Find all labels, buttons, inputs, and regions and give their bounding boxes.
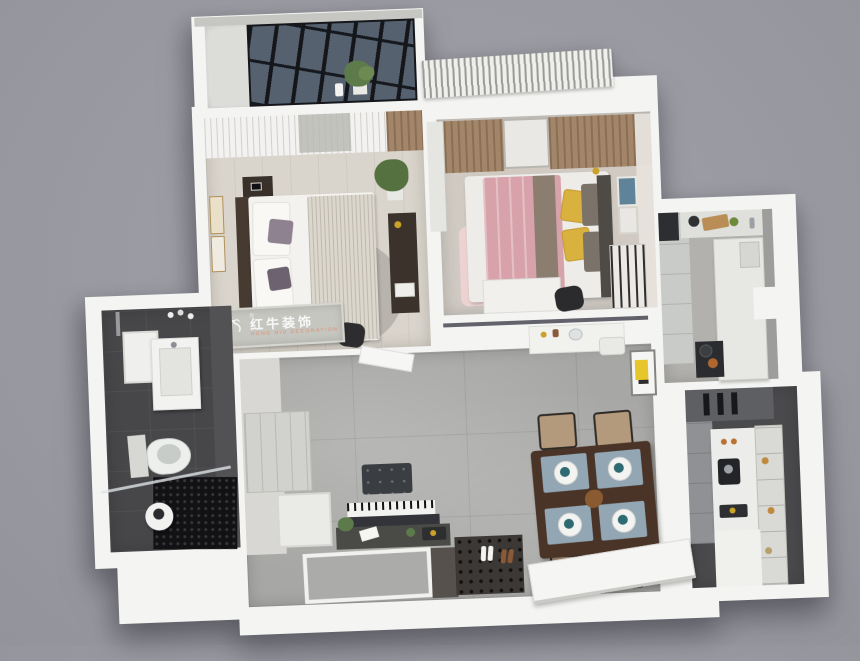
bedroom1-plant-icon bbox=[374, 159, 409, 192]
dining-chair-top-left bbox=[537, 412, 578, 451]
balcony-glass-windows bbox=[247, 18, 418, 106]
bedroom1-wall-frame-1 bbox=[209, 196, 224, 235]
room-second-bedroom bbox=[0, 0, 847, 17]
room-bathroom bbox=[0, 0, 847, 17]
registered-mark: ® bbox=[249, 313, 254, 319]
kitchen-wall-notch bbox=[753, 286, 784, 319]
toilet-tank bbox=[127, 435, 149, 478]
room-kitchen bbox=[0, 0, 847, 17]
bedroom2-book-shelf bbox=[609, 244, 647, 309]
white-shoe-right bbox=[488, 546, 494, 561]
piano-bench bbox=[362, 463, 413, 495]
bedroom2-window bbox=[502, 117, 550, 169]
bedroom1-side-curtain bbox=[386, 110, 424, 151]
room-pantry bbox=[0, 0, 847, 17]
balcony-wardrobe bbox=[209, 29, 252, 106]
pantry-appliance-slot-3 bbox=[731, 392, 738, 414]
bedroom2-curtain-right bbox=[548, 114, 636, 169]
bedroom1-wall-frame-2 bbox=[211, 236, 226, 273]
bedroom1-accent-pillow-2 bbox=[267, 266, 292, 291]
entry-panel bbox=[302, 547, 433, 604]
hallway-closet bbox=[243, 411, 312, 493]
white-shoe-left bbox=[481, 546, 486, 561]
pantry-appliance-cabinet bbox=[685, 387, 774, 422]
bedroom1-phone-icon bbox=[251, 182, 262, 190]
bedroom2-frame-white bbox=[618, 206, 639, 235]
vanity-perfume-icon-2 bbox=[552, 329, 558, 337]
vanity-stool bbox=[599, 337, 626, 356]
apartment-plan: ® 红牛装饰 HONG NIU DECORATION bbox=[0, 0, 860, 661]
watermark-banner: ® 红牛装饰 HONG NIU DECORATION bbox=[217, 302, 345, 349]
kitchen-faucet-icon bbox=[749, 217, 754, 228]
bedroom2-corner-wall bbox=[634, 113, 652, 166]
washer-box bbox=[277, 492, 333, 548]
kitchen-sink bbox=[739, 241, 760, 268]
room-balcony bbox=[0, 0, 847, 17]
kitchen-fridge bbox=[658, 212, 679, 241]
bedroom1-desk bbox=[388, 212, 420, 313]
pantry-appliance-slot-2 bbox=[717, 393, 724, 415]
room-master-bedroom: ® 红牛装饰 HONG NIU DECORATION bbox=[0, 0, 847, 17]
bedroom1-books bbox=[395, 283, 416, 298]
yellow-artwork-block bbox=[635, 360, 649, 380]
room-living-dining bbox=[0, 0, 847, 17]
balcony-vase bbox=[335, 83, 343, 96]
corner-wall-wedge bbox=[117, 547, 250, 624]
pantry-base-cabinet bbox=[714, 529, 762, 587]
pantry-appliance-slot-1 bbox=[703, 393, 710, 415]
bathroom-sink-basin bbox=[159, 347, 193, 396]
yellow-artwork-line bbox=[638, 380, 648, 384]
bedroom1-accent-pillow-1 bbox=[267, 219, 293, 245]
bedroom2-desk bbox=[483, 277, 562, 314]
bedroom2-curtain-left bbox=[436, 119, 504, 173]
floor-plan-stage: ® 红牛装饰 HONG NIU DECORATION bbox=[0, 0, 860, 645]
entry-mat bbox=[454, 535, 524, 596]
bedroom2-frame-blue bbox=[617, 176, 638, 207]
bedroom1-window-gap bbox=[298, 113, 351, 153]
